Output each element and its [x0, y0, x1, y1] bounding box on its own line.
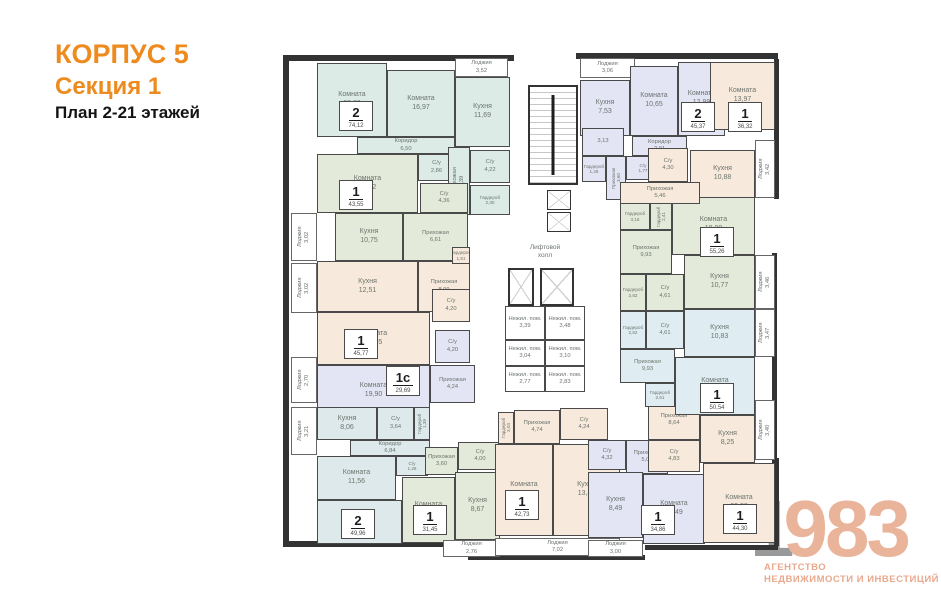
- room: С/у4,36: [420, 183, 468, 213]
- nonresidential-room: Нежил. пом.2,83: [545, 366, 585, 392]
- apartment-badge: 131,45: [413, 505, 447, 535]
- room: Гардероб2,30: [470, 185, 510, 215]
- room-area: 2,76: [466, 549, 477, 556]
- apartment-type: 1: [354, 334, 367, 349]
- apartment-badge: 134,86: [641, 505, 675, 535]
- room: Кухня10,83: [684, 309, 755, 357]
- room: С/у4,61: [646, 311, 684, 349]
- room-area: 8,64: [668, 420, 679, 427]
- staircase: [528, 85, 578, 185]
- room: Кухня8,06: [317, 407, 377, 440]
- apartment-total-area: 49,96: [345, 531, 371, 537]
- apartment-badge: 249,96: [341, 509, 375, 539]
- room-label: Коридор: [648, 139, 671, 146]
- room-label: С/у: [447, 298, 456, 305]
- room-area: 2,30: [486, 200, 495, 205]
- room-label: Лоджия: [297, 370, 304, 391]
- room: Комната10,65: [630, 66, 678, 136]
- room-area: 6,84: [384, 448, 395, 455]
- room-area: 1,77: [639, 168, 648, 173]
- room-area: 2,86: [431, 168, 442, 175]
- room-area: 3,16: [631, 217, 640, 222]
- room-label: Нежил. пом.: [548, 316, 581, 323]
- room: С/у4,24: [560, 408, 608, 440]
- room: Лоджия3,46: [755, 255, 775, 309]
- apartment-total-area: 31,45: [417, 527, 443, 533]
- apartment-type: 1с: [393, 371, 413, 386]
- room-label: Лоджия: [297, 227, 304, 248]
- room: Гардероб1,51: [452, 247, 470, 264]
- building-title: КОРПУС 5: [55, 38, 200, 72]
- room-area: 5,46: [654, 193, 665, 200]
- room-area: 3,60: [436, 461, 447, 468]
- room: С/у4,20: [435, 330, 470, 363]
- room-area: 3,42: [765, 163, 772, 174]
- room-area: 6,50: [400, 146, 411, 153]
- room-label: Нежил. пом.: [548, 346, 581, 353]
- room-area: 4,36: [438, 198, 449, 205]
- room-area: 8,25: [721, 439, 735, 448]
- room-label: Нежил. пом.: [508, 346, 541, 353]
- room-label: Комната: [343, 469, 370, 478]
- room-label: С/у: [670, 449, 679, 456]
- room-label: Прихожая: [428, 454, 455, 461]
- room: Лоджия3,06: [580, 58, 635, 78]
- room: Лоджия3,00: [588, 540, 643, 557]
- room-area: 3,48: [559, 323, 570, 330]
- room-label: Лоджия: [471, 60, 492, 67]
- room: С/у1,26: [396, 456, 428, 476]
- room-label: Нежил. пом.: [508, 316, 541, 323]
- apartment-total-area: 55,26: [704, 249, 730, 255]
- room: Гардероб1,39: [414, 407, 430, 440]
- room: С/у4,30: [648, 148, 688, 182]
- elevator-shaft: [540, 268, 574, 306]
- apartment-total-area: 29,69: [390, 388, 416, 394]
- apartment-badge: 1с29,69: [386, 366, 420, 396]
- room-area: 7,02: [552, 547, 563, 554]
- room-area: 1,26: [590, 169, 599, 174]
- floors-subtitle: План 2-21 этажей: [55, 102, 200, 124]
- room-area: 2,62: [629, 330, 638, 335]
- room: Лоджия3,02: [291, 263, 317, 313]
- apartment-type: 1: [349, 185, 362, 200]
- room-label: Кухня: [606, 496, 625, 505]
- room-label: Лоджия: [605, 541, 626, 548]
- room-area: 7,53: [598, 108, 612, 117]
- room: С/у3,64: [377, 407, 414, 440]
- room: Коридор6,84: [350, 440, 430, 456]
- room-label: С/у: [580, 417, 589, 424]
- apartment-type: 2: [349, 106, 362, 121]
- room-label: Лоджия: [758, 323, 765, 344]
- room: Прихожая3,60: [425, 447, 458, 475]
- room: Лоджия2,76: [443, 540, 500, 557]
- room-area: 3,02: [304, 231, 311, 242]
- room-label: Кухня: [713, 165, 732, 174]
- room: Прихожая9,93: [620, 230, 672, 274]
- room: Лоджия3,40: [755, 400, 775, 460]
- room-label: Комната: [725, 494, 752, 503]
- room-label: Лоджия: [758, 159, 765, 180]
- room: Коридор6,50: [357, 137, 455, 154]
- room-area: 4,24: [447, 384, 458, 391]
- room-area: 1,26: [408, 466, 417, 471]
- room-label: Комната: [700, 216, 727, 225]
- room-area: 3,52: [476, 68, 487, 75]
- room-area: 3,40: [765, 424, 772, 435]
- room-area: 19,90: [365, 391, 383, 400]
- nonresidential-room: Нежил. пом.3,04: [505, 340, 545, 366]
- apartment-total-area: 34,86: [645, 527, 671, 533]
- nonresidential-room: Нежил. пом.3,10: [545, 340, 585, 366]
- room-area: 4,32: [601, 455, 612, 462]
- room: Гардероб1,26: [582, 156, 606, 182]
- stair-rail: [552, 95, 555, 176]
- apartment-badge: 145,77: [344, 329, 378, 359]
- room: Кухня10,77: [684, 255, 755, 309]
- room: 3,13: [582, 128, 624, 156]
- room-area: 4,22: [484, 167, 495, 174]
- room-label: Кухня: [718, 430, 737, 439]
- room-area: 10,83: [711, 333, 729, 342]
- room-label: Кухня: [473, 103, 492, 112]
- room-area: 3,04: [506, 424, 511, 433]
- apartment-total-area: 36,32: [732, 124, 758, 130]
- apartment-type: 1: [738, 107, 751, 122]
- room: Гардероб3,16: [620, 203, 650, 230]
- room-area: 9,93: [642, 366, 653, 373]
- room-area: 1,51: [457, 256, 466, 261]
- room: Прихожая4,24: [430, 365, 475, 403]
- apartment-type: 1: [710, 232, 723, 247]
- room-area: 2,70: [304, 374, 311, 385]
- apartment-total-area: 43,55: [343, 202, 369, 208]
- room: Кухня10,75: [335, 213, 403, 261]
- room-area: 2,82: [629, 293, 638, 298]
- room-label: Коридор: [379, 441, 402, 448]
- apartment-type: 1: [515, 495, 528, 510]
- room-label: С/у: [486, 159, 495, 166]
- room: Комната16,97: [387, 70, 455, 137]
- apartment-type: 2: [691, 107, 704, 122]
- room-area: 2,41: [661, 212, 666, 221]
- room-label: Лоджия: [461, 541, 482, 548]
- room-label: Кухня: [338, 415, 357, 424]
- room-area: 3,10: [559, 353, 570, 360]
- room: Кухня8,25: [700, 415, 755, 463]
- elevator-shaft: [508, 268, 534, 306]
- room: Лоджия2,70: [291, 357, 317, 403]
- room-label: Лоджия: [758, 420, 765, 441]
- apartment-badge: 155,26: [700, 227, 734, 257]
- apartment-type: 1: [423, 510, 436, 525]
- room-area: 3,21: [304, 425, 311, 436]
- apartment-badge: 245,37: [681, 102, 715, 132]
- room: Прихожая5,46: [620, 182, 700, 204]
- room-label: С/у: [476, 449, 485, 456]
- room-label: Прихожая: [439, 377, 466, 384]
- room-label: Комната: [360, 382, 387, 391]
- room-area: 4,61: [659, 330, 670, 337]
- room-area: 3,02: [304, 282, 311, 293]
- room-area: 8,06: [340, 424, 354, 433]
- nonresidential-room: Нежил. пом.2,77: [505, 366, 545, 392]
- room-area: 3,06: [602, 68, 613, 75]
- room: Лоджия3,47: [755, 309, 775, 357]
- room-label: С/у: [664, 158, 673, 165]
- room-area: 4,20: [447, 347, 458, 354]
- room: Комната11,56: [317, 456, 396, 500]
- room: С/у4,22: [470, 150, 510, 183]
- room-area: 4,20: [445, 306, 456, 313]
- apartment-badge: 143,55: [339, 180, 373, 210]
- room-area: 4,00: [474, 456, 485, 463]
- room-label: Кухня: [710, 324, 729, 333]
- room-area: 2,61: [656, 395, 665, 400]
- room-area: 3,47: [765, 327, 772, 338]
- room: С/у4,32: [588, 440, 626, 470]
- room-area: 11,69: [474, 112, 491, 121]
- room-label: Прихожая: [633, 245, 660, 252]
- room-label: С/у: [661, 323, 670, 330]
- room-area: 16,97: [412, 104, 430, 113]
- room-area: 3,46: [765, 276, 772, 287]
- room-area: 6,61: [430, 237, 441, 244]
- nonresidential-room: Нежил. пом.3,48: [545, 306, 585, 340]
- room-label: Нежил. пом.: [508, 372, 541, 379]
- room-area: 10,65: [645, 101, 663, 110]
- room-label: С/у: [391, 416, 400, 423]
- room-label: С/у: [432, 160, 441, 167]
- section-title: Секция 1: [55, 72, 200, 102]
- room: С/у4,61: [646, 274, 684, 311]
- room-label: Коридор: [395, 138, 418, 145]
- room: Кухня8,49: [588, 472, 643, 538]
- nonresidential-room: Нежил. пом.3,39: [505, 306, 545, 340]
- room: Гардероб2,61: [645, 383, 675, 407]
- room-label: Комната: [640, 92, 667, 101]
- apartment-type: 1: [651, 510, 664, 525]
- room-label: Комната: [338, 91, 365, 100]
- room-area: 3,39: [519, 323, 530, 330]
- room-area: 10,75: [360, 237, 378, 246]
- room-area: 4,74: [531, 427, 542, 434]
- room-label: Комната: [510, 481, 537, 490]
- apartment-badge: 274,12: [339, 101, 373, 131]
- room-label: Лоджия: [597, 61, 618, 68]
- room: С/у4,83: [648, 440, 700, 472]
- room-label: Лоджия: [758, 272, 765, 293]
- room-area: 4,61: [659, 293, 670, 300]
- room: Гардероб3,04: [498, 412, 514, 444]
- room-area: 4,24: [578, 424, 589, 431]
- room: Кухня11,69: [455, 77, 510, 147]
- shaft: [547, 212, 571, 232]
- apartment-badge: 136,32: [728, 102, 762, 132]
- room: Гардероб2,41: [650, 203, 672, 230]
- room-area: 8,67: [471, 506, 485, 515]
- room-label: Лоджия: [297, 421, 304, 442]
- room-label: С/у: [440, 191, 449, 198]
- room-area: 2,83: [559, 379, 570, 386]
- room-area: 8,49: [609, 505, 623, 514]
- room-label: С/у: [661, 285, 670, 292]
- apartment-total-area: 42,73: [509, 512, 535, 518]
- room-label: Прихожая: [422, 230, 449, 237]
- room: Лоджия3,21: [291, 407, 317, 455]
- apartment-total-area: 44,30: [727, 526, 753, 532]
- apartment-total-area: 45,77: [348, 351, 374, 357]
- room-label: Кухня: [360, 228, 379, 237]
- room-area: 3,00: [610, 549, 621, 556]
- room-label: Кухня: [596, 99, 615, 108]
- room-area: 10,88: [714, 174, 732, 183]
- room-area: 12,51: [359, 287, 377, 296]
- room-area: 4,30: [662, 165, 673, 172]
- room: Гардероб2,82: [620, 274, 646, 311]
- room: Кухня12,51: [317, 261, 418, 312]
- apartment-total-area: 45,37: [685, 124, 711, 130]
- exterior-wall: [283, 55, 289, 547]
- room-label: Прихожая: [524, 420, 551, 427]
- room-label: Кухня: [710, 273, 729, 282]
- apartment-type: 1: [710, 388, 723, 403]
- room-label: Кухня: [358, 278, 377, 287]
- room: Прихожая4,74: [514, 410, 560, 444]
- room-area: 3,13: [597, 138, 608, 145]
- room-area: 11,56: [348, 478, 365, 487]
- room: Лоджия3,02: [291, 213, 317, 261]
- room-area: 3,64: [390, 424, 401, 431]
- room-label: Лоджия: [297, 278, 304, 299]
- apartment-badge: 150,54: [700, 383, 734, 413]
- shaft: [547, 190, 571, 210]
- room-label: Прихожая: [634, 359, 661, 366]
- room: Кухня8,67: [455, 472, 500, 540]
- room-label: Комната: [729, 87, 756, 96]
- room-label: Прихожая: [431, 279, 458, 286]
- room: Прихожая9,93: [620, 349, 675, 383]
- room-area: 4,83: [668, 456, 679, 463]
- elevator-hall-label: Лифтовойхолл: [500, 244, 590, 264]
- plan-header: КОРПУС 5 Секция 1 План 2-21 этажей: [55, 38, 200, 124]
- room-area: 3,04: [519, 353, 530, 360]
- room-area: 1,39: [422, 419, 427, 428]
- apartment-badge: 144,30: [723, 504, 757, 534]
- room-label: С/у: [603, 448, 612, 455]
- room-label: Лоджия: [547, 540, 568, 547]
- room-label: Комната: [407, 95, 434, 104]
- apartment-type: 1: [733, 509, 746, 524]
- room: С/у4,20: [432, 289, 470, 322]
- apartment-total-area: 74,12: [343, 123, 369, 129]
- room-area: 2,77: [519, 379, 530, 386]
- apartment-type: 2: [351, 514, 364, 529]
- room-label: С/у: [448, 339, 457, 346]
- apartment-badge: 142,73: [505, 490, 539, 520]
- room-area: 9,93: [640, 252, 651, 259]
- room: Лоджия3,42: [755, 140, 775, 198]
- room-label: Прихожая: [647, 186, 674, 193]
- room-area: 10,77: [711, 282, 729, 291]
- apartment-total-area: 50,54: [704, 405, 730, 411]
- exterior-wall: [645, 545, 778, 550]
- room-label: Нежил. пом.: [548, 372, 581, 379]
- room-label: Кухня: [468, 497, 487, 506]
- room: Лоджия3,52: [455, 58, 508, 77]
- room: Гардероб2,62: [620, 311, 646, 349]
